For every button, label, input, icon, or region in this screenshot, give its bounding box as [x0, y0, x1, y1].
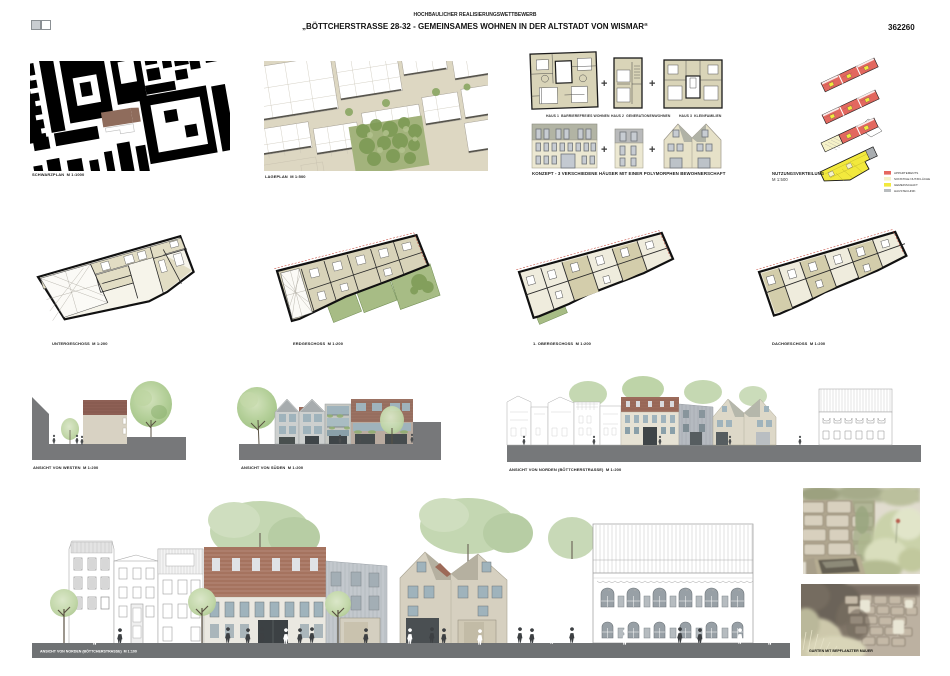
svg-text:ANSICHT VON NORDEN (BÖTTCHERST: ANSICHT VON NORDEN (BÖTTCHERSTRASSE) M 1…: [40, 649, 137, 654]
svg-text:+: +: [649, 78, 655, 90]
svg-text:GEMEINSCHAFT: GEMEINSCHAFT: [894, 183, 918, 187]
svg-text:+: +: [601, 78, 607, 90]
svg-text:SONSTIGE NUTZFLÄCHEN: SONSTIGE NUTZFLÄCHEN: [894, 177, 930, 181]
svg-text:GARTEN MIT BEPFLANZTER MAUER: GARTEN MIT BEPFLANZTER MAUER: [809, 649, 873, 653]
svg-text:+: +: [649, 144, 655, 156]
svg-text:APPARTEMENTS: APPARTEMENTS: [894, 171, 918, 175]
svg-text:HAUSTECHNIK: HAUSTECHNIK: [894, 189, 916, 192]
svg-text:+: +: [601, 144, 607, 156]
